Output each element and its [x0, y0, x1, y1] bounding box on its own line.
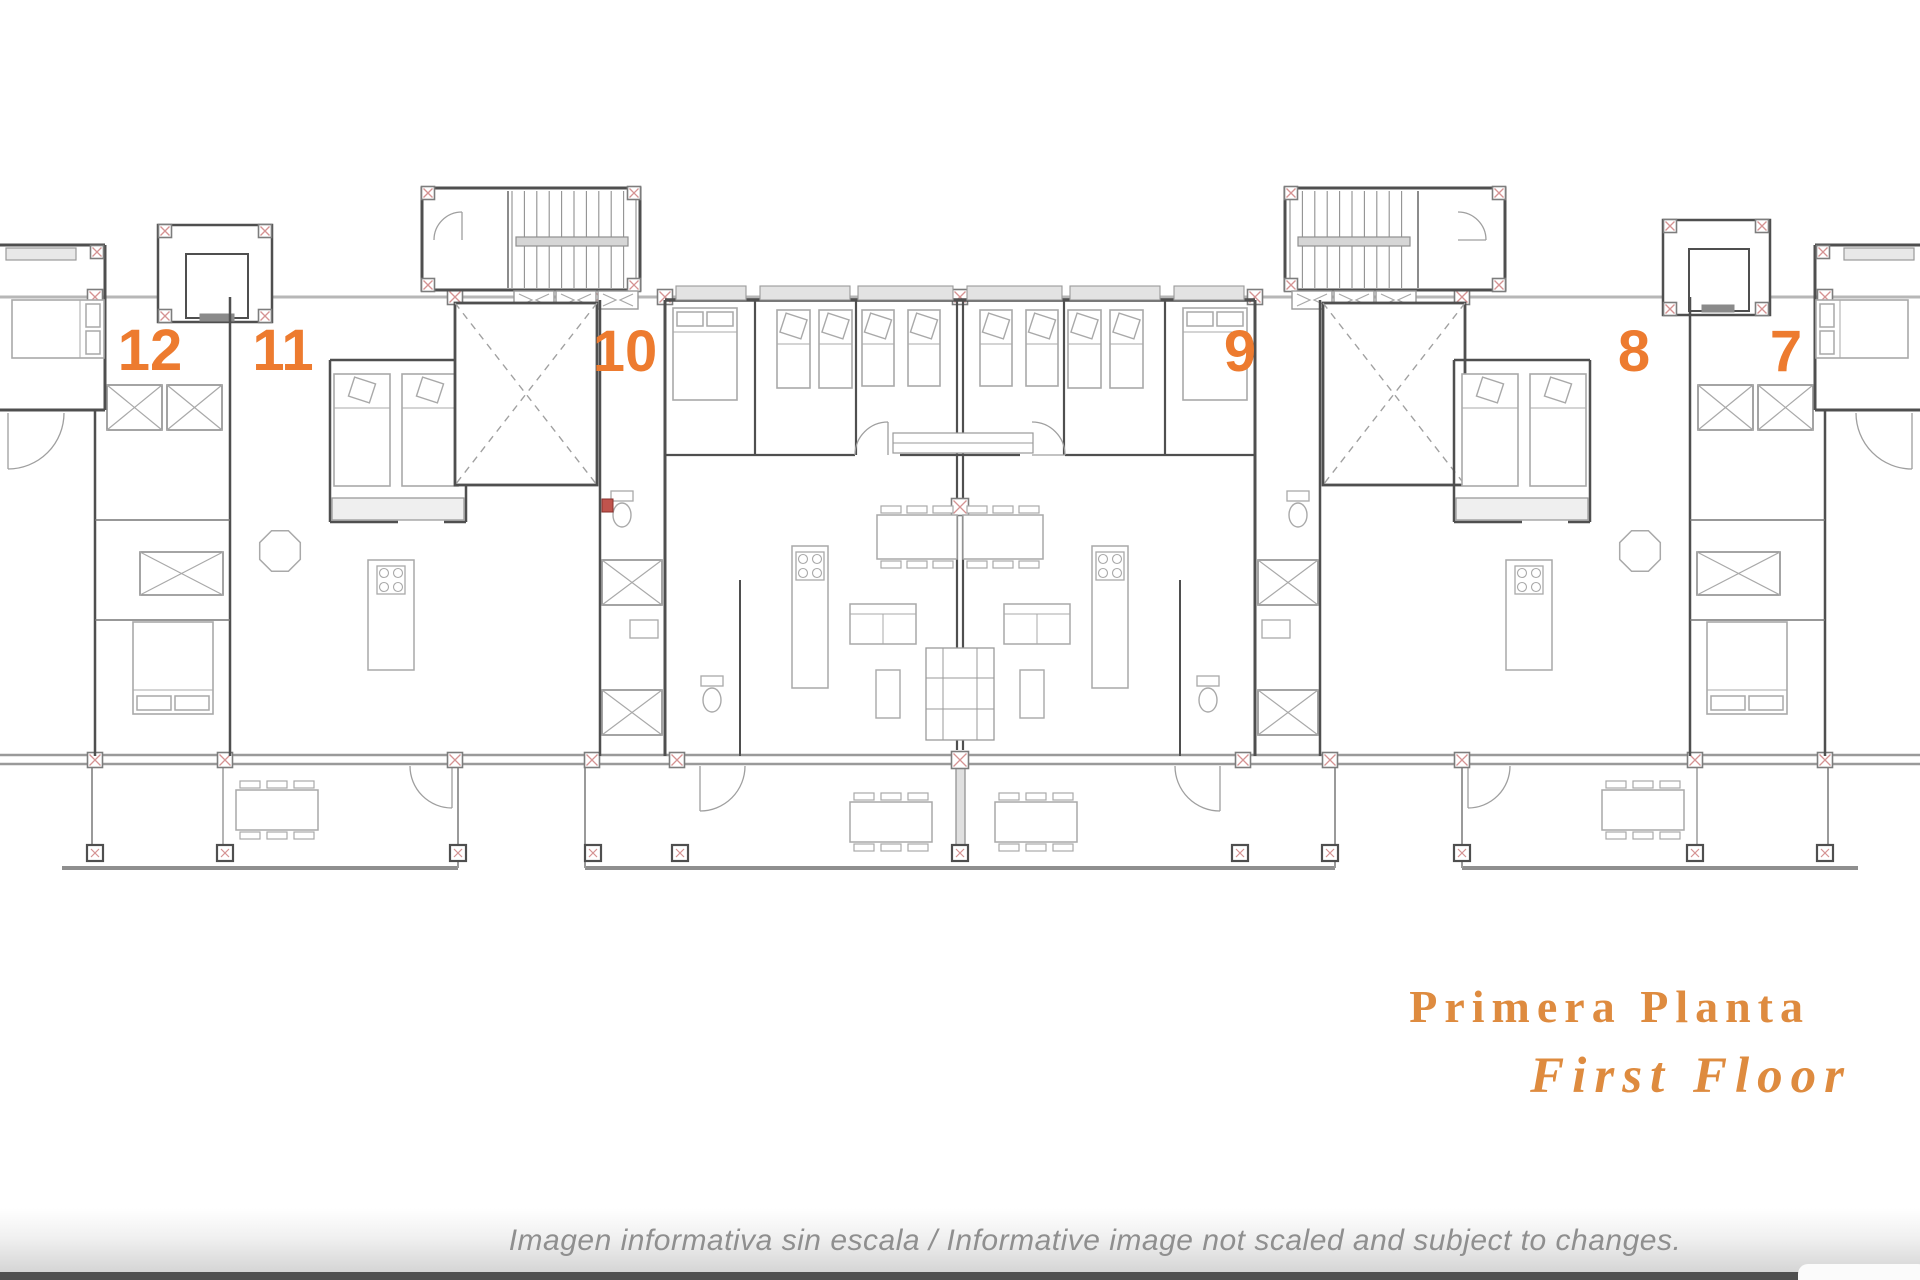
unit-label-8: 8: [1618, 323, 1650, 381]
unit-label-11: 11: [252, 322, 313, 380]
footer-corner-tab: [1798, 1264, 1920, 1280]
plan-title-spanish: Primera Planta: [1409, 980, 1852, 1033]
floor-plan-page: 121110987 Primera Planta First Floor Ima…: [0, 0, 1920, 1280]
disclaimer-text: Imagen informativa sin escala / Informat…: [0, 1224, 1920, 1258]
unit-label-10: 10: [593, 323, 658, 381]
unit-label-9: 9: [1224, 323, 1256, 381]
disclaimer-bar: Imagen informativa sin escala / Informat…: [0, 1208, 1920, 1280]
unit-label-12: 12: [118, 322, 183, 380]
plan-title: Primera Planta First Floor: [1409, 980, 1852, 1105]
plan-title-english: First Floor: [1409, 1047, 1852, 1105]
unit-label-7: 7: [1770, 323, 1802, 381]
